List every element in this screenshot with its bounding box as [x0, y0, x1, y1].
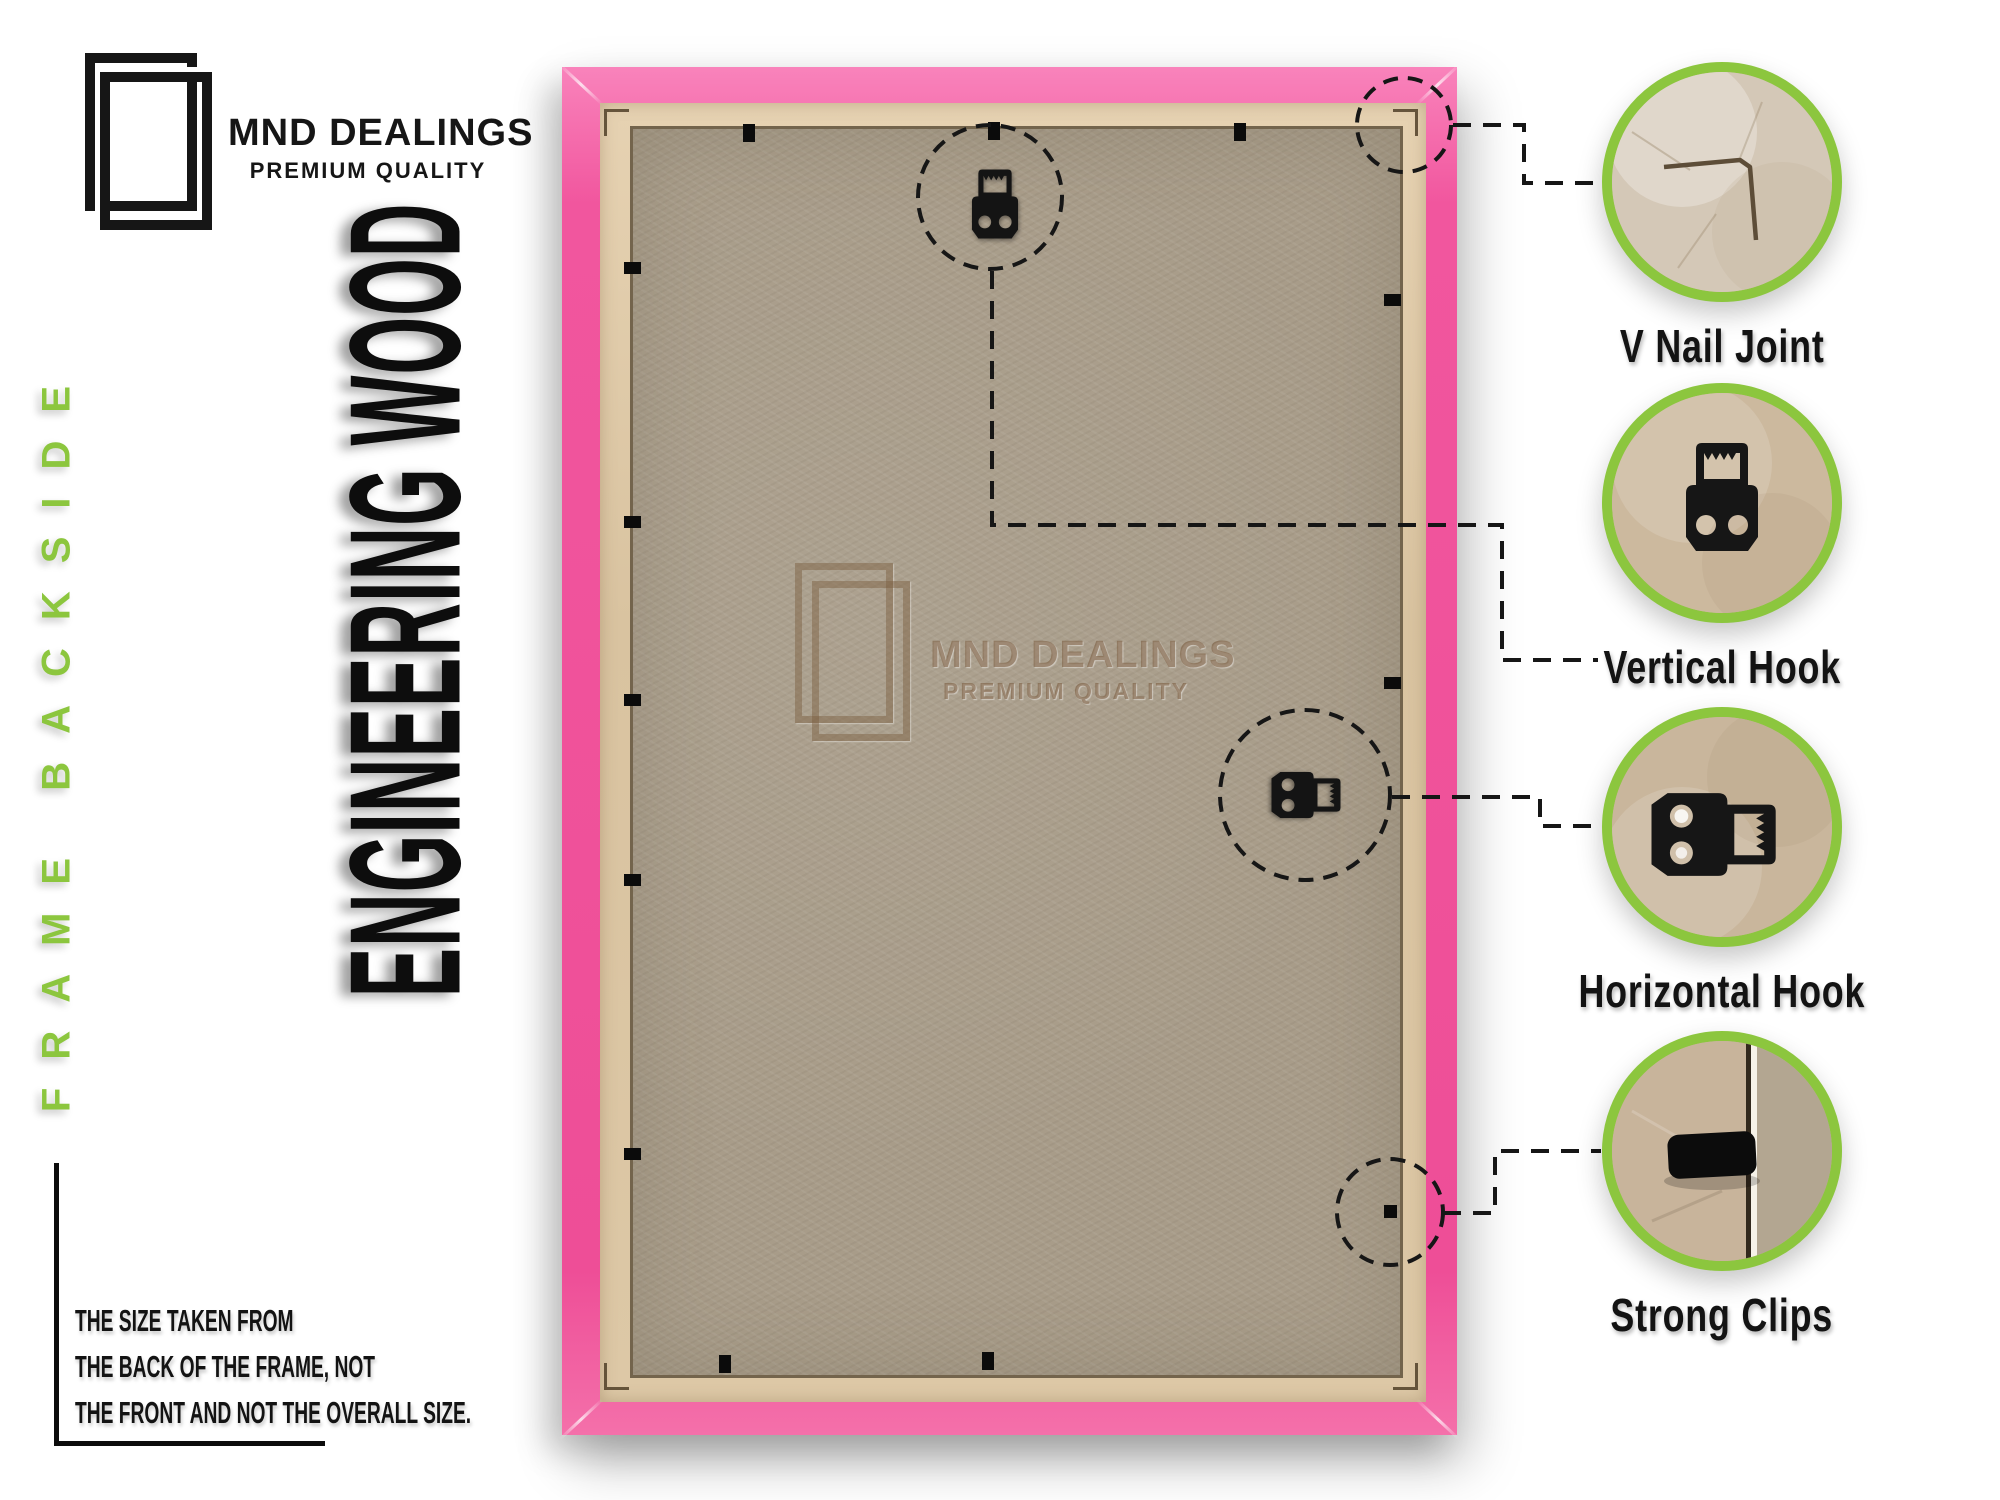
frame-backside-label: FRAME BACKSIDE [35, 358, 80, 1112]
frame-clip [624, 516, 641, 528]
frame-clip [624, 874, 641, 886]
strong-clips-photo-art [1612, 1041, 1832, 1261]
horizontal-hook-photo [1602, 707, 1842, 947]
note-line: THE SIZE TAKEN FROM [75, 1303, 294, 1339]
frame-clip [1384, 294, 1401, 306]
callout-horizontal-hook: Horizontal Hook [1482, 707, 1962, 1018]
frame-clip [624, 694, 641, 706]
callout-label: Strong Clips [1611, 1288, 1834, 1342]
callout-label: Vertical Hook [1603, 640, 1840, 694]
frame-photo [562, 67, 1457, 1435]
page-root: MND DEALINGS PREMIUM QUALITY FRAME BACKS… [0, 0, 2000, 1500]
watermark-name: MND DEALINGS [930, 634, 1235, 677]
watermark-logo-icon [812, 581, 910, 741]
v-nail-joint-photo [1602, 62, 1842, 302]
v-nail-mark [604, 1363, 629, 1390]
v-nail-joint-photo-art [1612, 72, 1832, 292]
miter-joint-line [559, 1399, 603, 1441]
strong-clips-photo [1602, 1031, 1842, 1271]
note-line: THE FRONT AND NOT THE OVERALL SIZE. [75, 1395, 471, 1431]
frame-clip [743, 124, 755, 142]
callout-v-nail-joint: V Nail Joint [1482, 62, 1962, 373]
logo-frame-rect-front [100, 72, 212, 230]
vertical-hook-photo-art [1612, 393, 1832, 613]
frame-backboard [633, 129, 1400, 1375]
vertical-hook-icon [963, 157, 1027, 251]
horizontal-hook-icon [1260, 763, 1352, 827]
frame-clip [1384, 677, 1401, 689]
vertical-hook-photo [1602, 383, 1842, 623]
brand-name: MND DEALINGS [228, 112, 533, 155]
v-nail-mark [1393, 1363, 1418, 1390]
callout-label: V Nail Joint [1620, 319, 1825, 373]
frame-clip [1234, 123, 1246, 141]
frame-clip [624, 1148, 641, 1160]
v-nail-mark [1393, 109, 1418, 136]
callout-label: Horizontal Hook [1579, 964, 1866, 1018]
miter-joint-line [559, 64, 603, 106]
miter-joint-line [1416, 1399, 1460, 1441]
callout-strong-clips: Strong Clips [1482, 1031, 1962, 1342]
frame-clip [1384, 1205, 1397, 1218]
v-nail-mark [604, 109, 629, 136]
miter-joint-line [1416, 64, 1460, 106]
frame-clip [982, 1352, 994, 1370]
watermark-tagline: PREMIUM QUALITY [930, 678, 1202, 705]
engineering-wood-label: ENGINEERING WOOD [316, 203, 497, 998]
frame-clip [719, 1355, 731, 1373]
frame-clip [624, 262, 641, 274]
note-line: THE BACK OF THE FRAME, NOT [75, 1349, 375, 1385]
brand-tagline: PREMIUM QUALITY [228, 158, 508, 184]
callout-vertical-hook: Vertical Hook [1482, 383, 1962, 694]
frame-clip [988, 122, 1000, 140]
horizontal-hook-photo-art [1612, 717, 1832, 937]
